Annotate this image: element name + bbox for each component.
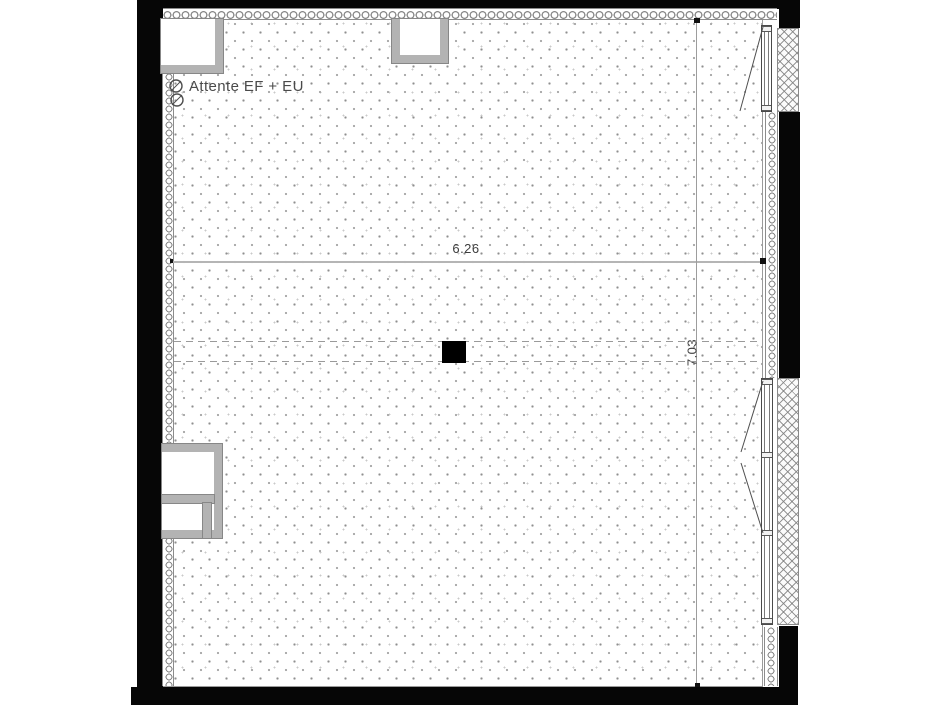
window-mullion — [762, 452, 772, 458]
floor-plan-canvas: Attente EF + EU 6.26 7.03 — [0, 0, 940, 705]
dashed-reference-line — [174, 341, 760, 342]
structural-column — [442, 341, 466, 363]
window-cap — [762, 618, 772, 624]
window-exterior-sill-bottom — [777, 378, 799, 625]
wall-bottom — [131, 687, 798, 705]
insulation-left — [162, 73, 174, 686]
insulation-right-middle — [765, 112, 778, 378]
dimension-marker — [695, 683, 700, 687]
window-cap — [762, 26, 771, 32]
window-glazing-lines — [764, 380, 770, 623]
wall-right-middle — [779, 112, 800, 378]
window-cap — [762, 105, 771, 111]
window-exterior-sill-top — [777, 28, 799, 112]
duct-shaft-left — [162, 444, 222, 538]
window-frame-bottom — [761, 378, 773, 625]
dimension-line-horizontal — [172, 261, 764, 263]
dimension-marker — [170, 259, 173, 263]
annotation-attente-ef-eu: Attente EF + EU — [189, 78, 304, 95]
wall-left — [137, 0, 163, 705]
wall-right-lower — [779, 626, 798, 687]
window-cap — [762, 379, 772, 385]
wall-right-header — [779, 0, 800, 28]
insulation-right-lower — [764, 627, 778, 686]
insulation-top — [163, 8, 777, 20]
dimension-value-width: 6.26 — [440, 241, 492, 256]
dashed-reference-line — [174, 361, 760, 362]
window-mullion — [762, 530, 772, 536]
dimension-marker — [760, 258, 766, 264]
niche-top-left — [161, 19, 223, 73]
dimension-value-height: 7.03 — [685, 327, 700, 379]
dimension-marker — [694, 18, 700, 23]
window-glazing-lines — [764, 27, 769, 110]
niche-top-center — [392, 19, 448, 63]
duct-shaft-divider — [162, 495, 214, 503]
window-frame-top — [761, 25, 772, 112]
duct-shaft-inner-wall — [203, 503, 211, 538]
